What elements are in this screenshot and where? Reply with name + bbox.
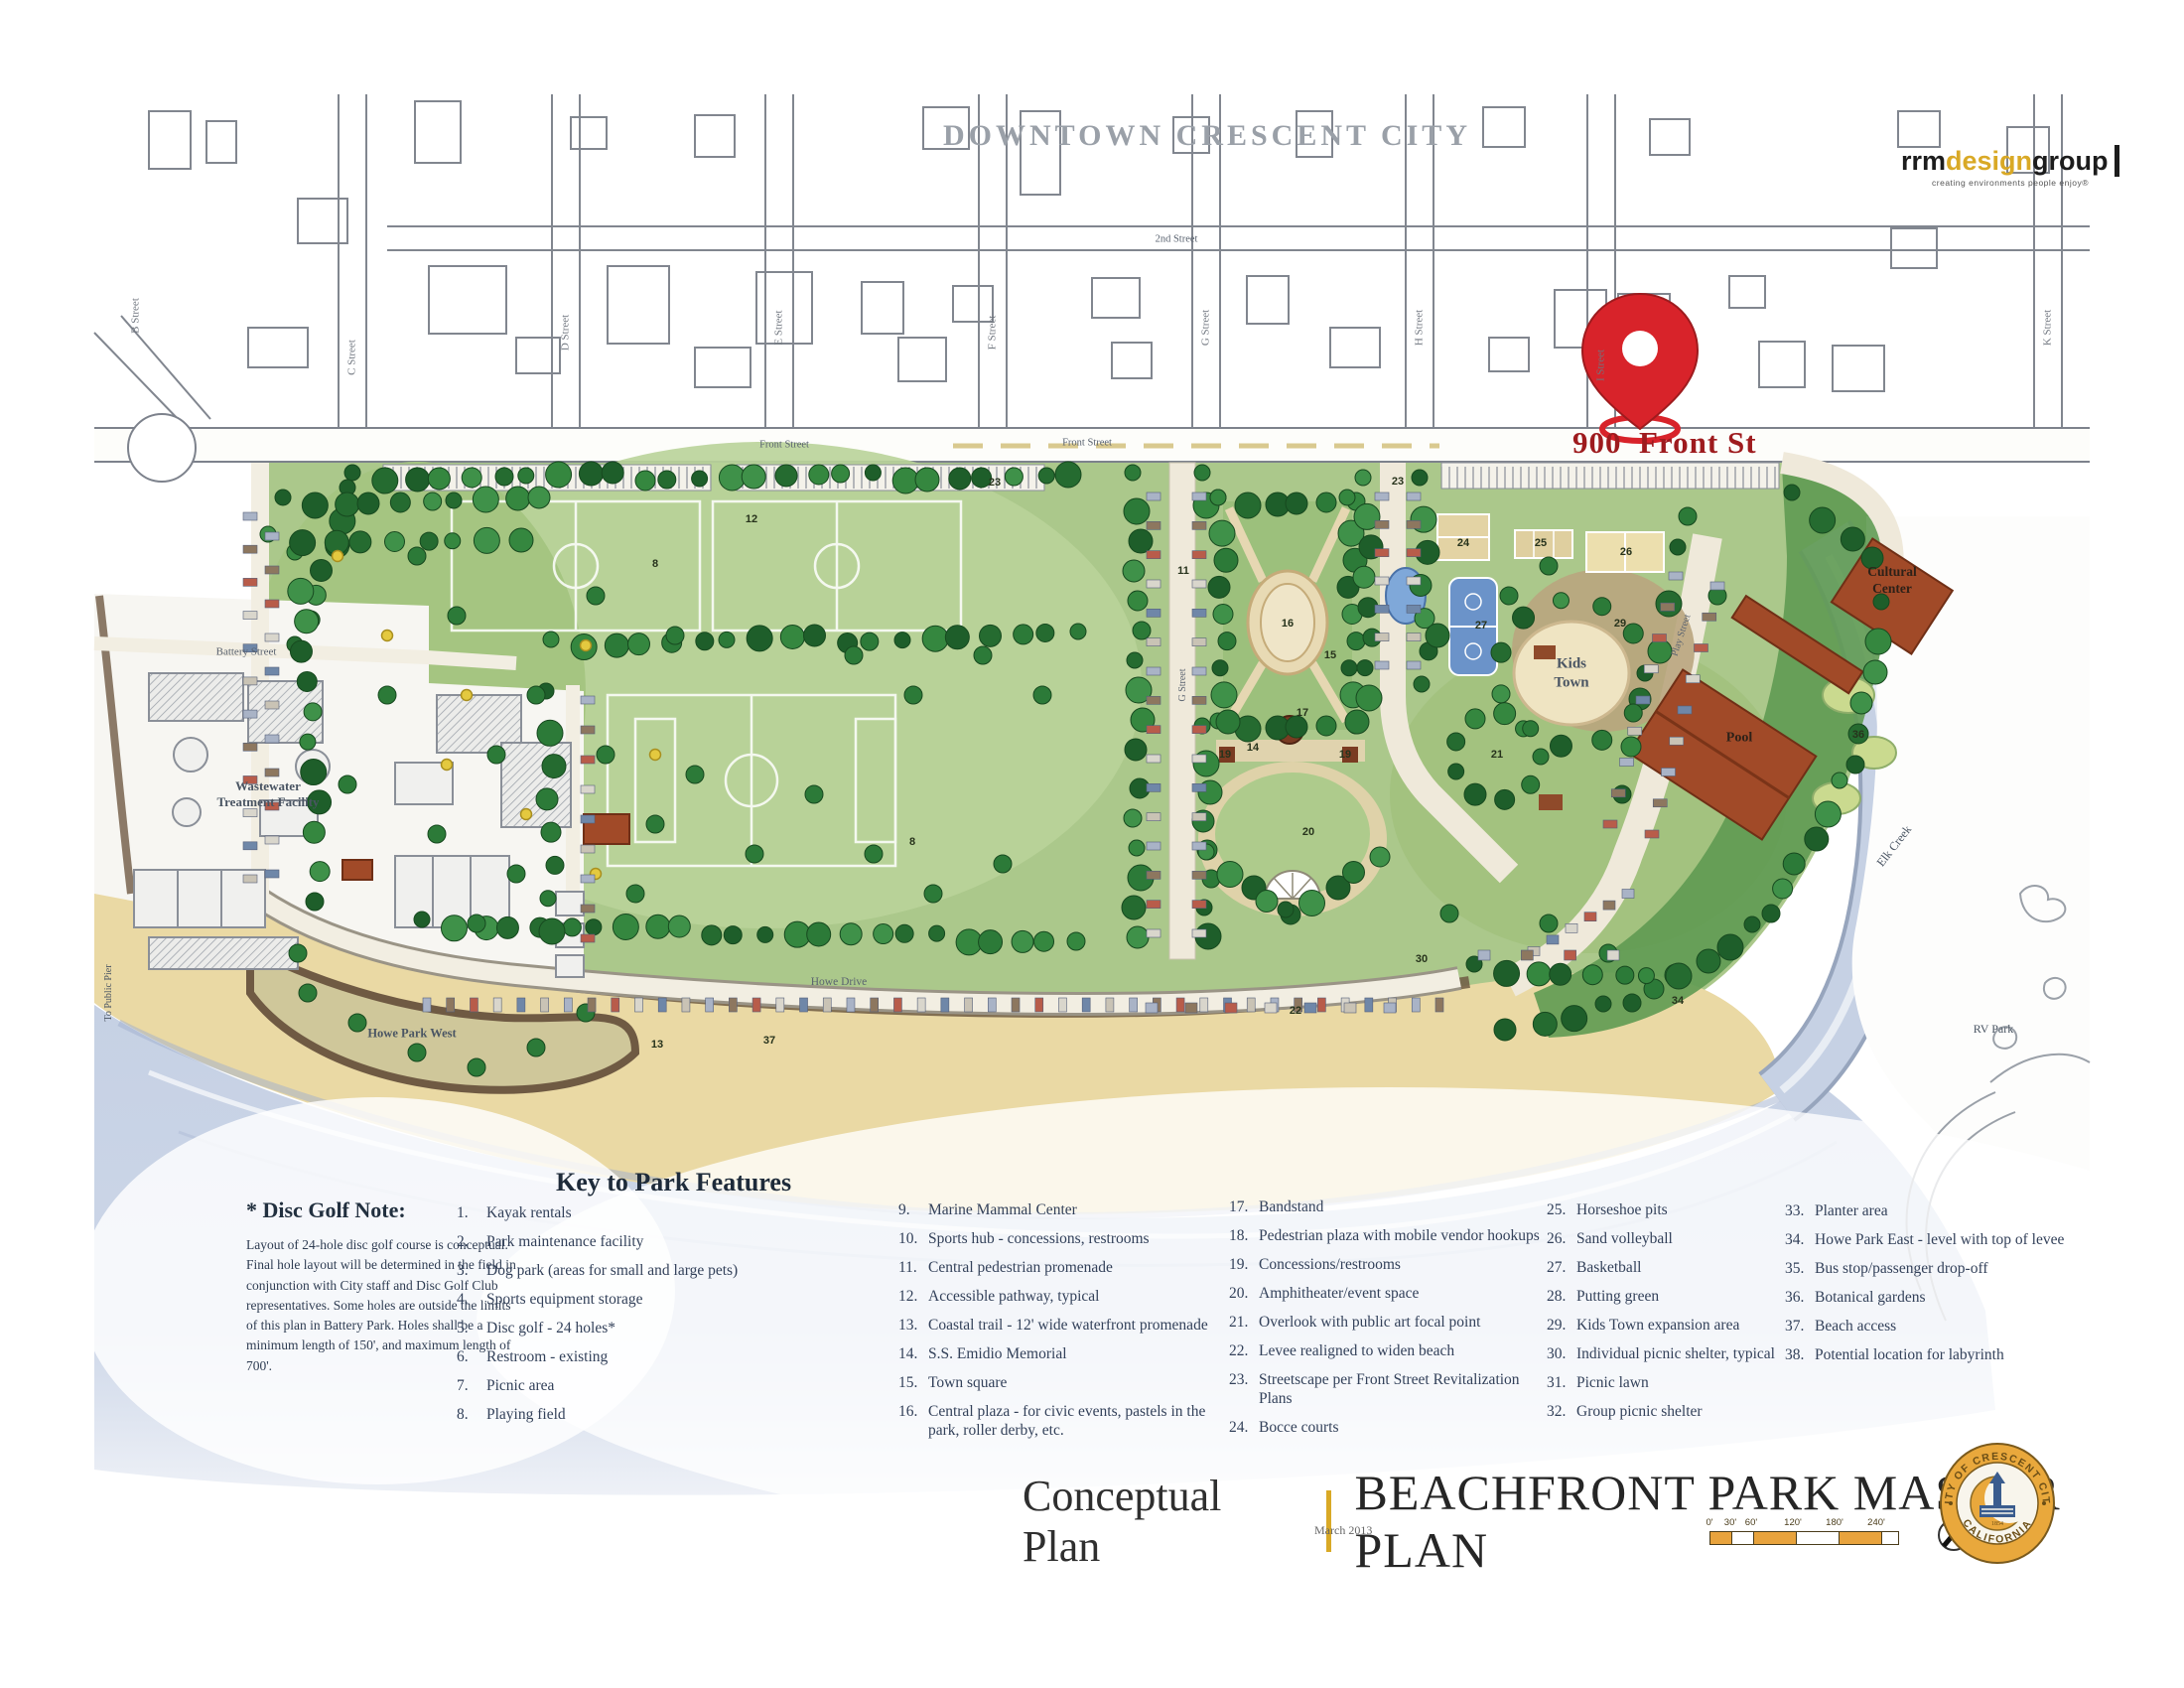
legend-item: 7.Picnic area: [457, 1376, 794, 1395]
area-label: Cultural Center: [1852, 564, 1932, 598]
legend-item-number: 16.: [898, 1402, 928, 1440]
legend-item-number: 26.: [1547, 1229, 1576, 1248]
logo-rrm: rrm: [1901, 146, 1946, 177]
legend-item-number: 22.: [1229, 1341, 1259, 1360]
map-number: 26: [1620, 546, 1632, 558]
legend-item-label: Bandstand: [1259, 1197, 1323, 1216]
plan-type-label: Conceptual Plan: [1023, 1471, 1302, 1572]
map-number: 21: [1491, 749, 1503, 761]
street-label: I Street: [1594, 350, 1607, 381]
legend-item-label: Marine Mammal Center: [928, 1200, 1077, 1219]
legend-item-label: Howe Park East - level with top of levee: [1815, 1230, 2064, 1249]
legend-item-number: 9.: [898, 1200, 928, 1219]
legend-item: 33.Planter area: [1785, 1201, 2103, 1220]
legend-item-label: Individual picnic shelter, typical: [1576, 1344, 1775, 1363]
legend-item-label: Sports hub - concessions, restrooms: [928, 1229, 1150, 1248]
legend-item-number: 21.: [1229, 1313, 1259, 1332]
road-label: G Street: [1177, 668, 1189, 701]
legend-item: 14.S.S. Emidio Memorial: [898, 1344, 1226, 1363]
legend-item-label: Levee realigned to widen beach: [1259, 1341, 1454, 1360]
legend-item-label: Disc golf - 24 holes*: [486, 1319, 615, 1337]
map-number: 16: [1282, 618, 1294, 630]
legend-item-number: 20.: [1229, 1284, 1259, 1303]
map-number: 8: [652, 558, 658, 570]
legend-column: 1.Kayak rentals2.Park maintenance facili…: [457, 1203, 794, 1434]
legend-item-number: 15.: [898, 1373, 928, 1392]
map-number: 30: [1416, 953, 1428, 965]
legend-item: 6.Restroom - existing: [457, 1347, 794, 1366]
map-number: 12: [746, 513, 757, 525]
road-label: 2nd Street: [1156, 234, 1198, 247]
legend-item-number: 29.: [1547, 1316, 1576, 1335]
legend-item-label: Bocce courts: [1259, 1418, 1338, 1437]
legend-item-label: Kids Town expansion area: [1576, 1316, 1739, 1335]
legend-item-number: 31.: [1547, 1373, 1576, 1392]
legend-item-number: 19.: [1229, 1255, 1259, 1274]
scale-tick-label: 180': [1826, 1517, 1843, 1528]
road-label: Battery Street: [216, 645, 277, 658]
legend-item: 5.Disc golf - 24 holes*: [457, 1319, 794, 1337]
legend-item-number: 4.: [457, 1290, 486, 1309]
legend-item: 29.Kids Town expansion area: [1547, 1316, 1825, 1335]
legend-item: 24.Bocce courts: [1229, 1418, 1557, 1437]
legend-item-label: Basketball: [1576, 1258, 1641, 1277]
legend-item: 8.Playing field: [457, 1405, 794, 1424]
road-label: Front Street: [759, 440, 809, 453]
legend-item: 30.Individual picnic shelter, typical: [1547, 1344, 1825, 1363]
legend-item-number: 12.: [898, 1287, 928, 1306]
legend-item: 27.Basketball: [1547, 1258, 1825, 1277]
legend-item-label: Overlook with public art focal point: [1259, 1313, 1480, 1332]
logo-design: design: [1946, 146, 2032, 177]
map-number: 19: [1219, 749, 1231, 761]
legend-item-label: Playing field: [486, 1405, 566, 1424]
legend-item-label: Sand volleyball: [1576, 1229, 1673, 1248]
map-number: 25: [1535, 537, 1547, 549]
legend-item: 4.Sports equipment storage: [457, 1290, 794, 1309]
legend-item-label: Kayak rentals: [486, 1203, 572, 1222]
map-number: 23: [1392, 476, 1404, 488]
scale-segment: [1710, 1532, 1732, 1544]
scale-tick-label: 240': [1867, 1517, 1885, 1528]
logo-group: group: [2032, 146, 2108, 177]
legend-item-label: Planter area: [1815, 1201, 1888, 1220]
scale-tick-label: 60': [1745, 1517, 1757, 1528]
legend-item-number: 17.: [1229, 1197, 1259, 1216]
legend-item-number: 24.: [1229, 1418, 1259, 1437]
legend-item-number: 27.: [1547, 1258, 1576, 1277]
legend-item: 22.Levee realigned to widen beach: [1229, 1341, 1557, 1360]
legend-item: 32.Group picnic shelter: [1547, 1402, 1825, 1421]
legend-item: 25.Horseshoe pits: [1547, 1200, 1825, 1219]
legend-item: 18.Pedestrian plaza with mobile vendor h…: [1229, 1226, 1557, 1245]
map-number: 34: [1672, 995, 1684, 1007]
legend-item-number: 8.: [457, 1405, 486, 1424]
scale-segments: [1709, 1531, 1899, 1545]
legend-item-label: Central pedestrian promenade: [928, 1258, 1113, 1277]
legend-column: 33.Planter area34.Howe Park East - level…: [1785, 1201, 2103, 1374]
area-label: Howe Park West: [367, 1027, 456, 1042]
scale-tick-label: 120': [1784, 1517, 1802, 1528]
legend-item-number: 3.: [457, 1261, 486, 1280]
legend-item: 17.Bandstand: [1229, 1197, 1557, 1216]
legend-item: 28.Putting green: [1547, 1287, 1825, 1306]
area-label: Pool: [1726, 731, 1752, 748]
map-number: 20: [1302, 826, 1314, 838]
street-label: C Street: [345, 340, 358, 375]
legend-item-number: 28.: [1547, 1287, 1576, 1306]
map-number: 23: [989, 477, 1001, 489]
legend-item-label: Beach access: [1815, 1317, 1896, 1336]
legend-item: 3.Dog park (areas for small and large pe…: [457, 1261, 794, 1280]
scanned-plan-page: DOWNTOWN CRESCENT CITY rrmdesigngroup cr…: [0, 0, 2184, 1688]
legend-item: 10.Sports hub - concessions, restrooms: [898, 1229, 1226, 1248]
road-label: Front Street: [1062, 438, 1112, 451]
legend-column: 9.Marine Mammal Center10.Sports hub - co…: [898, 1200, 1226, 1450]
legend-item-label: Accessible pathway, typical: [928, 1287, 1099, 1306]
map-number: 36: [1852, 729, 1864, 741]
street-label: K Street: [2041, 310, 2054, 346]
legend-item: 34.Howe Park East - level with top of le…: [1785, 1230, 2103, 1249]
map-number: 8: [909, 836, 915, 848]
legend-item: 37.Beach access: [1785, 1317, 2103, 1336]
street-label: D Street: [559, 315, 572, 351]
legend-column: 17.Bandstand18.Pedestrian plaza with mob…: [1229, 1197, 1557, 1447]
legend-item: 21.Overlook with public art focal point: [1229, 1313, 1557, 1332]
legend-item-label: Concessions/restrooms: [1259, 1255, 1401, 1274]
legend-item: 38.Potential location for labyrinth: [1785, 1345, 2103, 1364]
legend-item-label: Dog park (areas for small and large pets…: [486, 1261, 738, 1280]
area-label: Kids Town: [1540, 654, 1603, 692]
legend-item: 31.Picnic lawn: [1547, 1373, 1825, 1392]
legend-item-label: Picnic lawn: [1576, 1373, 1649, 1392]
legend-item: 9.Marine Mammal Center: [898, 1200, 1226, 1219]
map-number: 19: [1339, 749, 1351, 761]
scale-bar: 0'30'60'120'180'240': [1709, 1517, 1920, 1545]
scale-tick-label: 0': [1706, 1517, 1712, 1528]
map-number: 13: [651, 1039, 663, 1051]
legend-item-number: 35.: [1785, 1259, 1815, 1278]
legend-item-label: Botanical gardens: [1815, 1288, 1925, 1307]
scale-segment: [1797, 1532, 1840, 1544]
map-number: 37: [763, 1035, 775, 1047]
street-label: H Street: [1413, 310, 1426, 346]
legend-title: Key to Park Features: [556, 1168, 791, 1197]
seal-year: 1854: [1991, 1521, 2003, 1527]
street-label: F Street: [986, 316, 999, 351]
scale-segment: [1840, 1532, 1882, 1544]
rrm-design-group-logo: rrmdesigngroup creating environments peo…: [1901, 145, 2119, 188]
map-number: 27: [1475, 620, 1487, 632]
legend-item-number: 6.: [457, 1347, 486, 1366]
legend-item-number: 36.: [1785, 1288, 1815, 1307]
map-number: 29: [1614, 618, 1626, 630]
legend-item-label: Restroom - existing: [486, 1347, 608, 1366]
legend-item-number: 11.: [898, 1258, 928, 1277]
legend-item-number: 33.: [1785, 1201, 1815, 1220]
map-number: 11: [1177, 565, 1189, 577]
scale-tick-label: 30': [1724, 1517, 1736, 1528]
legend-item-label: Sports equipment storage: [486, 1290, 643, 1309]
gold-divider: [1326, 1490, 1331, 1552]
legend-item-number: 7.: [457, 1376, 486, 1395]
legend-item-number: 23.: [1229, 1370, 1259, 1408]
legend-item-label: Park maintenance facility: [486, 1232, 643, 1251]
legend-item-number: 14.: [898, 1344, 928, 1363]
area-label: RV Park: [1974, 1022, 2014, 1036]
map-number: 14: [1247, 742, 1259, 754]
legend-item-number: 13.: [898, 1316, 928, 1335]
street-label: G Street: [1199, 310, 1212, 346]
street-label: B Street: [129, 298, 142, 334]
legend-item-label: Coastal trail - 12' wide waterfront prom…: [928, 1316, 1208, 1335]
scale-segment: [1754, 1532, 1797, 1544]
legend-item-number: 2.: [457, 1232, 486, 1251]
legend-column: 25.Horseshoe pits26.Sand volleyball27.Ba…: [1547, 1200, 1825, 1431]
legend-item-number: 5.: [457, 1319, 486, 1337]
plan-date: March 2013: [1314, 1523, 1372, 1538]
legend-item: 19.Concessions/restrooms: [1229, 1255, 1557, 1274]
legend-item: 35.Bus stop/passenger drop-off: [1785, 1259, 2103, 1278]
legend-item-label: Streetscape per Front Street Revitalizat…: [1259, 1370, 1557, 1408]
legend-item: 1.Kayak rentals: [457, 1203, 794, 1222]
map-number: 15: [1324, 649, 1336, 661]
road-label: Howe Drive: [811, 976, 868, 990]
legend-item-number: 1.: [457, 1203, 486, 1222]
legend-item: 13.Coastal trail - 12' wide waterfront p…: [898, 1316, 1226, 1335]
legend-item: 23.Streetscape per Front Street Revitali…: [1229, 1370, 1557, 1408]
scale-segment: [1732, 1532, 1754, 1544]
legend-item-number: 18.: [1229, 1226, 1259, 1245]
legend-item-number: 38.: [1785, 1345, 1815, 1364]
marker-address-label: 900 Front St: [1572, 425, 1757, 461]
legend-item-number: 25.: [1547, 1200, 1576, 1219]
legend-item: 20.Amphitheater/event space: [1229, 1284, 1557, 1303]
legend-item-label: Bus stop/passenger drop-off: [1815, 1259, 1988, 1278]
amphitheater: [1198, 762, 1387, 916]
legend-item: 26.Sand volleyball: [1547, 1229, 1825, 1248]
legend-item-number: 30.: [1547, 1344, 1576, 1363]
legend-item-label: Central plaza - for civic events, pastel…: [928, 1402, 1226, 1440]
logo-tagline: creating environments people enjoy®: [1901, 178, 2119, 188]
area-label: Wastewater Treatment Facility: [212, 778, 324, 811]
legend-item-label: Putting green: [1576, 1287, 1659, 1306]
legend-item: 2.Park maintenance facility: [457, 1232, 794, 1251]
legend-item-number: 37.: [1785, 1317, 1815, 1336]
map-number: 17: [1297, 707, 1308, 719]
legend-item: 11.Central pedestrian promenade: [898, 1258, 1226, 1277]
legend-item: 36.Botanical gardens: [1785, 1288, 2103, 1307]
scale-labels: 0'30'60'120'180'240': [1709, 1517, 1920, 1529]
legend-item: 16.Central plaza - for civic events, pas…: [898, 1402, 1226, 1440]
legend-item: 15.Town square: [898, 1373, 1226, 1392]
legend-item-label: Horseshoe pits: [1576, 1200, 1668, 1219]
logo-mark-icon: [2115, 145, 2119, 177]
legend-item-label: S.S. Emidio Memorial: [928, 1344, 1067, 1363]
downtown-title: DOWNTOWN CRESCENT CITY: [943, 119, 1471, 153]
legend-item-label: Group picnic shelter: [1576, 1402, 1703, 1421]
legend-item-label: Amphitheater/event space: [1259, 1284, 1419, 1303]
map-number: 22: [1290, 1005, 1301, 1017]
city-seal: 1854 CITY OF CRESCENT CITY CALIFORNIA: [1938, 1436, 2057, 1567]
legend-item-label: Town square: [928, 1373, 1007, 1392]
street-label: E Street: [772, 310, 785, 345]
legend-item-number: 34.: [1785, 1230, 1815, 1249]
legend-item: 12.Accessible pathway, typical: [898, 1287, 1226, 1306]
area-label: To Public Pier: [103, 964, 115, 1021]
legend-item-label: Pedestrian plaza with mobile vendor hook…: [1259, 1226, 1540, 1245]
legend-item-number: 10.: [898, 1229, 928, 1248]
legend-item-number: 32.: [1547, 1402, 1576, 1421]
legend-item-label: Picnic area: [486, 1376, 554, 1395]
map-number: 24: [1457, 537, 1469, 549]
legend-item-label: Potential location for labyrinth: [1815, 1345, 2004, 1364]
